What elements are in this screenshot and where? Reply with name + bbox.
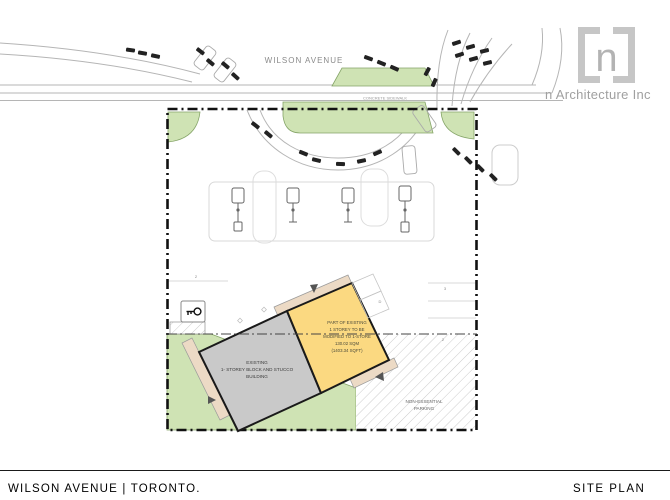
green-patch-right [441,112,474,139]
street-label: WILSON AVENUE [265,56,344,65]
company-name: n Architecture Inc [545,87,665,102]
sidewalk-label: CONCRETE SIDEWALK [363,96,407,101]
svg-text:BUILDING: BUILDING [246,374,268,379]
survey-diamonds [238,307,267,323]
stall-label: 2 [195,274,198,279]
green-patch-left [168,112,200,142]
bike-stall-icon [342,188,354,222]
bike-stall-icon [232,188,244,231]
titleblock-rule [0,470,670,471]
bike-stall-icon [287,188,299,222]
svg-text:1- STOREY BLOCK AND STUCCO: 1- STOREY BLOCK AND STUCCO [221,367,294,372]
stall-label: 3 [444,286,447,291]
site-plan-page: WILSON AVENUE CONCRETE SIDEWALK EXISTING… [0,0,670,500]
svg-text:1 STOREY TO BE: 1 STOREY TO BE [329,327,364,332]
svg-text:PART OF EXISTING: PART OF EXISTING [327,320,367,325]
key-sign [181,301,205,322]
green-strip [283,102,433,133]
svg-text:EXISTING: EXISTING [246,360,268,365]
green-median [332,68,434,86]
stall-label: D [379,299,382,304]
svg-text:130.02 SQM: 130.02 SQM [335,341,360,346]
hatch-strip [170,322,205,334]
project-title: WILSON AVENUE | TORONTO. [8,483,201,495]
logo-bracket-icon: n [578,27,635,83]
logo-letter: n [578,34,635,83]
svg-text:(1403.34 SQFT): (1403.34 SQFT) [331,348,363,353]
bike-stall-icons [232,186,411,232]
bike-stall-icon [399,186,411,232]
sheet-title: SITE PLAN [573,483,645,495]
svg-text:PARKING: PARKING [414,406,435,411]
road-lines [0,28,563,170]
svg-text:NON-ESSENTIAL: NON-ESSENTIAL [405,399,442,404]
svg-text:MODIFIED TO 1-STORE: MODIFIED TO 1-STORE [323,334,371,339]
company-logo: n n Architecture Inc [545,27,665,99]
